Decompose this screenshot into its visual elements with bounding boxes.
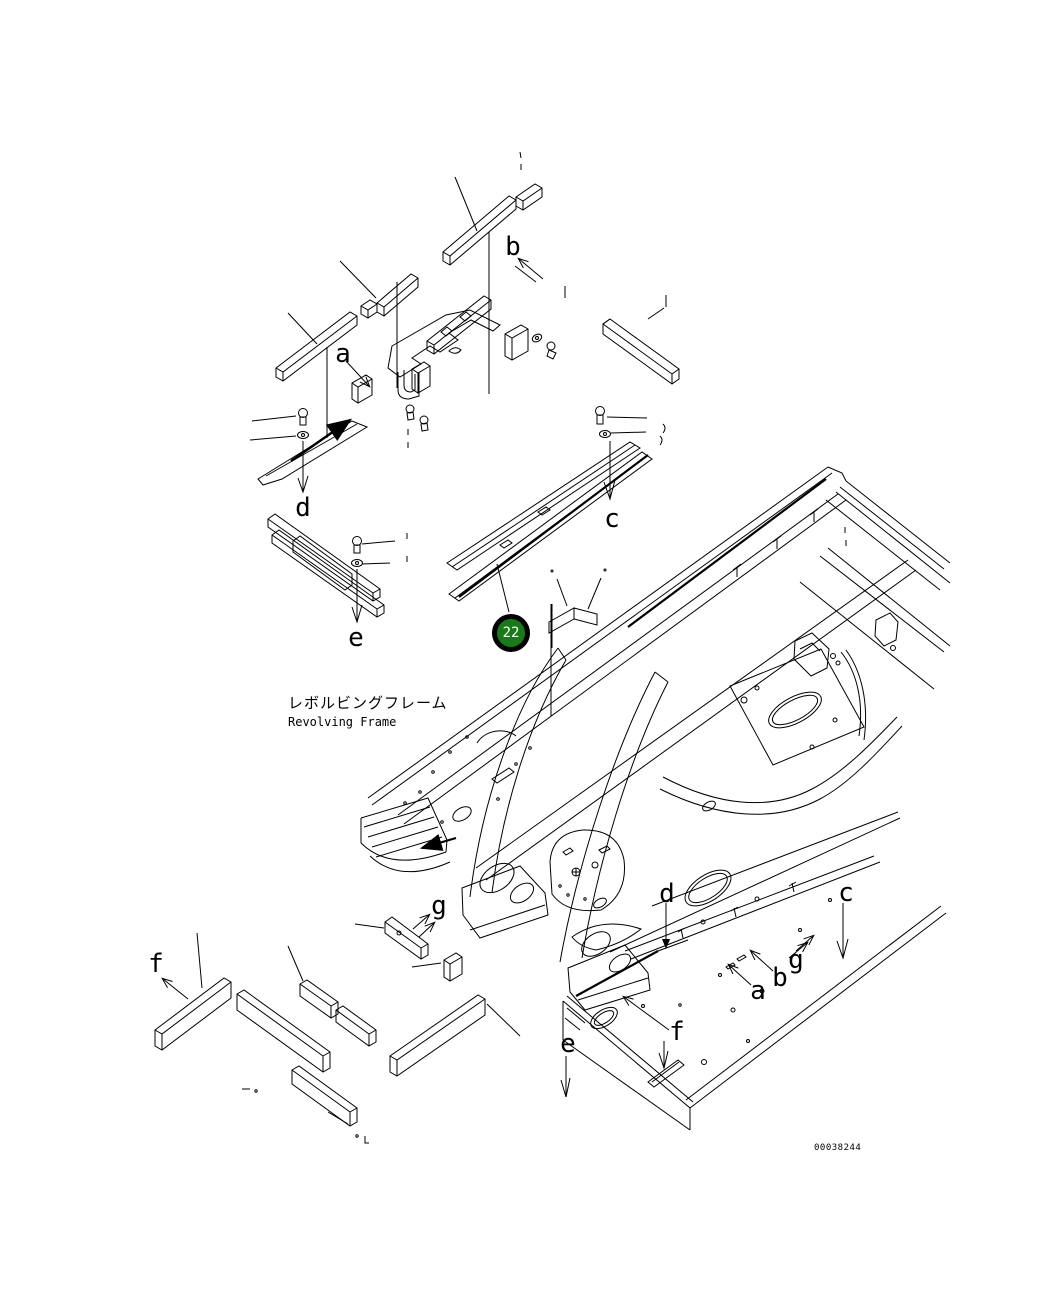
balloon-leader <box>497 564 509 612</box>
callout-g-frame: g <box>788 947 804 973</box>
v-bracket-part <box>549 569 606 633</box>
callout-e-frame: e <box>560 1031 576 1057</box>
part-balloon[interactable]: 22 <box>492 614 530 652</box>
line-art <box>0 0 1047 1308</box>
callout-d-frame: d <box>659 881 675 907</box>
top-exploded-parts <box>276 152 846 546</box>
callout-b-top: b <box>505 234 521 260</box>
callout-f-bars: f <box>148 951 164 977</box>
drawing-number: 00038244 <box>814 1143 861 1153</box>
figure-title-japanese: レボルビングフレーム <box>288 692 448 713</box>
revolving-frame-drawing <box>361 467 950 1130</box>
callout-b-frame: b <box>772 965 788 991</box>
callout-e-rail: e <box>348 625 364 651</box>
figure-title-english: Revolving Frame <box>288 715 448 729</box>
callout-c-frame: c <box>838 880 854 906</box>
bottom-left-parts <box>155 915 520 1143</box>
figure-title: レボルビングフレーム Revolving Frame <box>288 692 448 729</box>
rail-d-assembly <box>250 409 367 493</box>
callout-a-top: a <box>335 341 351 367</box>
callout-g-bars: g <box>431 893 447 919</box>
callout-c-rail: c <box>604 506 620 532</box>
rail-c-assembly <box>447 407 652 602</box>
rail-e-assembly <box>268 514 407 622</box>
parts-diagram-page: 22 レボルビングフレーム Revolving Frame 00038244 a… <box>0 0 1047 1308</box>
callout-f-frame: f <box>669 1019 685 1045</box>
part-balloon-number: 22 <box>503 625 520 641</box>
callout-d-rail: d <box>295 495 311 521</box>
callout-a-frame: a <box>750 978 766 1004</box>
